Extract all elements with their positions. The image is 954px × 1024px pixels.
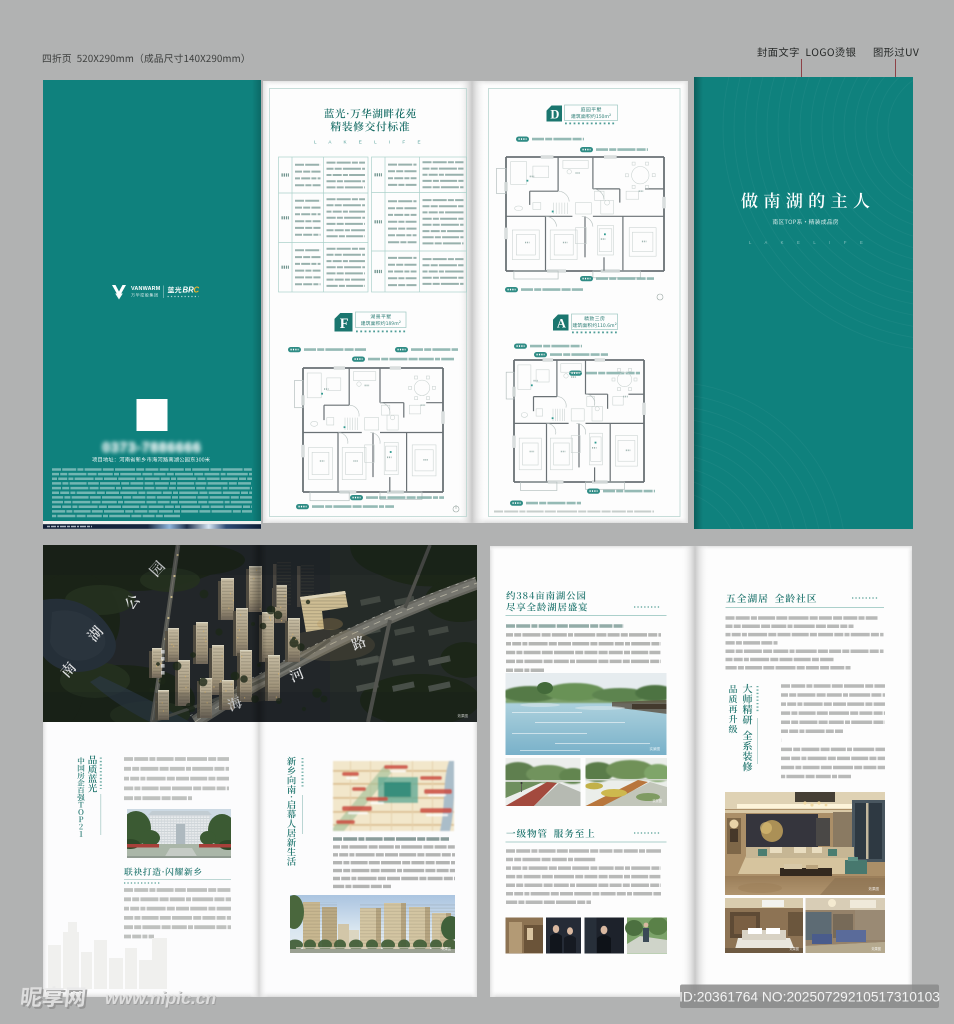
svg-text:L A K E L I F E: L A K E L I F E: [314, 140, 426, 145]
svg-text:F: F: [340, 316, 349, 332]
svg-text:C: C: [194, 286, 200, 295]
svg-text:效果图: 效果图: [871, 946, 881, 951]
svg-text:0373-7886666: 0373-7886666: [102, 440, 201, 455]
svg-text:VANWARM: VANWARM: [131, 286, 161, 292]
svg-text:效果图: 效果图: [441, 946, 451, 951]
svg-text:www.nipic.cn: www.nipic.cn: [105, 988, 216, 1008]
svg-text:A: A: [557, 317, 566, 331]
svg-text:L A K E L I F E: L A K E L I F E: [749, 240, 869, 245]
svg-text:实景图: 实景图: [652, 798, 662, 803]
svg-text:实景图: 实景图: [650, 746, 661, 751]
svg-text:效果图: 效果图: [789, 946, 799, 951]
svg-text:BR: BR: [183, 286, 195, 295]
svg-text:ID:20361764 NO:202507292105173: ID:20361764 NO:20250729210517310103: [679, 990, 940, 1005]
svg-text:D: D: [550, 108, 559, 122]
svg-text:效果图: 效果图: [458, 713, 469, 718]
svg-text:效果图: 效果图: [869, 886, 880, 891]
